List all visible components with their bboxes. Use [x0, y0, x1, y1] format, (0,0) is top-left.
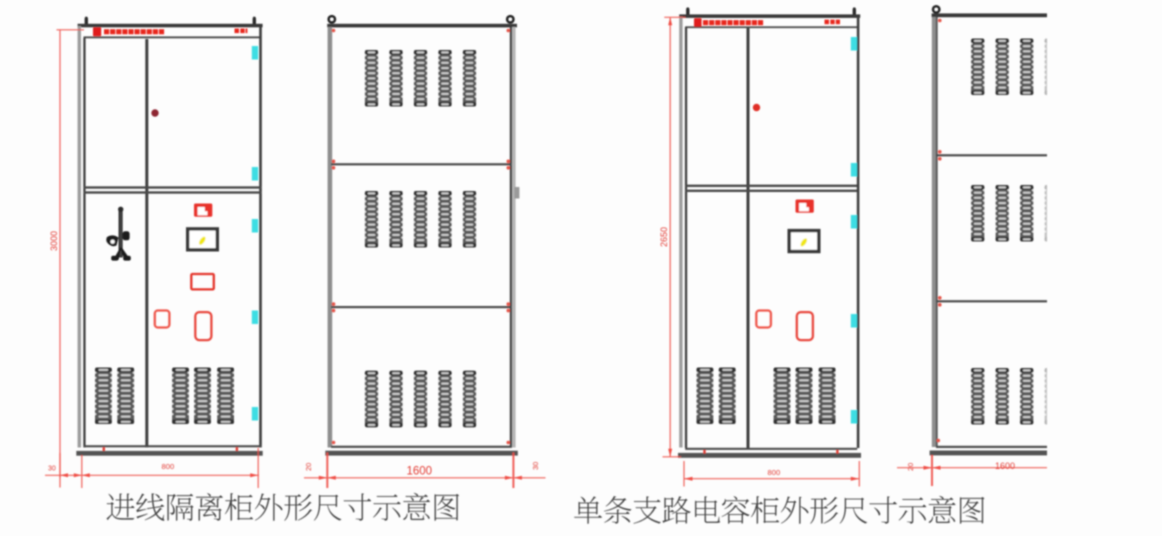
svg-text:800: 800	[162, 462, 175, 471]
svg-text:800: 800	[768, 468, 781, 477]
svg-text:3000: 3000	[49, 231, 59, 251]
svg-text:30: 30	[531, 462, 540, 470]
svg-text:1600: 1600	[407, 466, 433, 478]
svg-text:30: 30	[48, 466, 56, 473]
svg-text:1600: 1600	[995, 461, 1015, 471]
svg-text:20: 20	[304, 463, 313, 471]
svg-text:20: 20	[906, 463, 915, 471]
svg-text:2650: 2650	[659, 227, 669, 247]
